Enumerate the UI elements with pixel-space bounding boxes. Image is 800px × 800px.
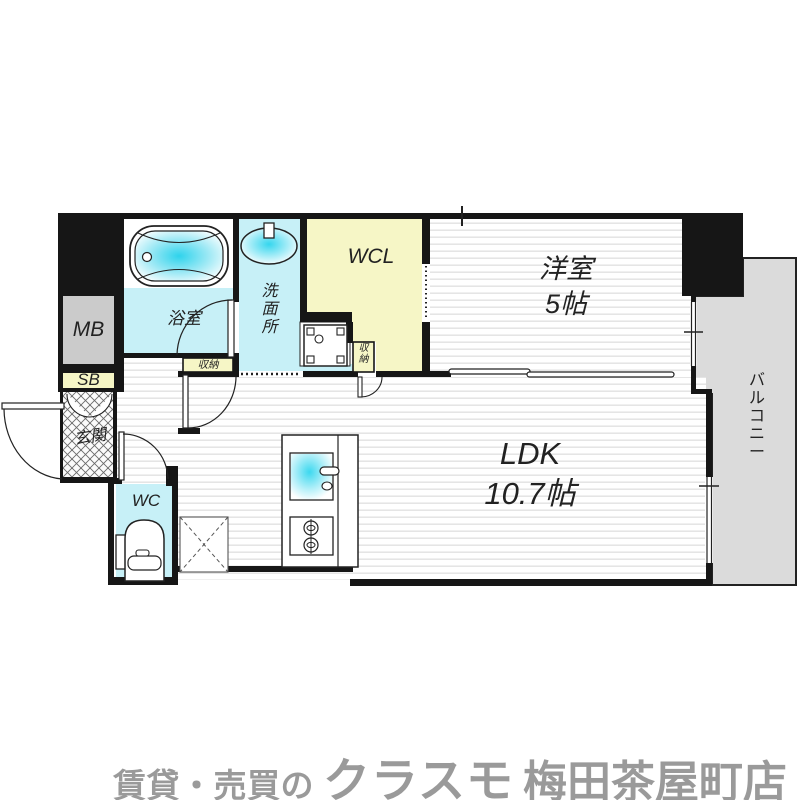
ldk-label: LDK10.7帖	[420, 437, 640, 511]
storage-hall-label: 収納	[183, 357, 233, 372]
balcony-label: バルコニー	[747, 372, 767, 477]
shaft-box-label: SB	[62, 370, 115, 389]
bathroom-label: 浴室	[148, 304, 220, 328]
bathtub	[130, 226, 228, 286]
entrance-door	[2, 403, 64, 479]
wcl-label: WCL	[338, 244, 404, 270]
floor-plan-drawing	[0, 0, 800, 800]
logo-brand: クラスモ	[323, 742, 514, 800]
kitchen-sink	[290, 453, 339, 500]
meter-box-label: MB	[62, 295, 115, 365]
washroom-opening	[239, 371, 303, 377]
wc-label: WC	[121, 491, 171, 511]
agency-logo: 賃貸・売買の クラスモ 梅田茶屋町店	[105, 742, 795, 800]
logo-prefix: 賃貸・売買の	[113, 759, 314, 800]
washroom-label: 洗面所	[260, 283, 279, 355]
bedroom-label: 洋室5帖	[480, 250, 652, 324]
floor-plan-page: MB SB 玄関 浴室 洗面所 WCL 収納 収納 洋室5帖 LDK10.7帖 …	[0, 0, 800, 800]
logo-branch: 梅田茶屋町店	[523, 746, 787, 800]
kitchen-counter	[282, 435, 358, 567]
refrigerator-space	[180, 517, 228, 572]
wcl-folding-door	[422, 264, 430, 322]
washing-machine	[304, 325, 347, 366]
storage-wcl-label: 収納	[355, 343, 372, 372]
stove	[290, 517, 333, 555]
